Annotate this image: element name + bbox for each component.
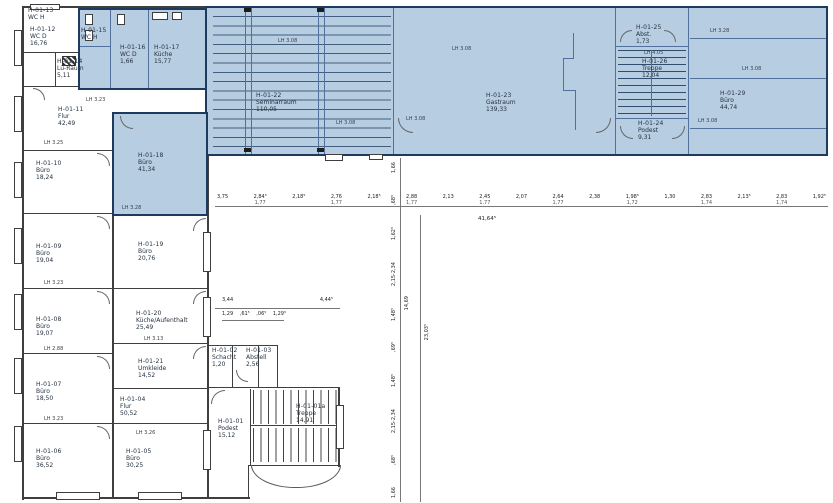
dimension-value: 2,07 bbox=[514, 195, 529, 207]
dimension-value: 1,98⁵1,72 bbox=[624, 195, 641, 207]
room-label-h-01-26: H-01-26Treppe12,04 bbox=[642, 58, 668, 80]
dimension-value: 2,641,77 bbox=[550, 195, 565, 207]
door-arc bbox=[193, 218, 206, 231]
room-label-h-01-14: H-01-14Lü-Raum5,11 bbox=[57, 58, 84, 80]
clear-height-label: LH 3.25 bbox=[44, 140, 63, 146]
dimension-value: 2,831,74 bbox=[774, 195, 789, 207]
dimension-line bbox=[400, 158, 401, 502]
room-label-h-01-24: H-01-24Podest9,31 bbox=[638, 120, 664, 142]
dimension-value: 1,48⁵ bbox=[392, 374, 397, 387]
wall bbox=[393, 8, 394, 154]
room-label-h-01-01a: H-01-01aTreppe14,91 bbox=[296, 403, 325, 425]
room-label-h-01-11: H-01-11Flur42,49 bbox=[58, 106, 84, 128]
column-strip bbox=[245, 8, 252, 154]
dimension-value: 2,15-2,34 bbox=[392, 262, 397, 286]
dimension-value: 2,13⁵ bbox=[736, 195, 753, 207]
room-label-h-01-03: H-01-03Abstell2,56 bbox=[246, 347, 272, 369]
dimension-value: 1,62⁵ bbox=[392, 227, 397, 240]
room-label-h-01-15: H-01-15WC H bbox=[81, 27, 107, 41]
window-symbol bbox=[56, 492, 100, 500]
door-arc bbox=[33, 88, 45, 100]
window-symbol bbox=[203, 232, 211, 272]
dimension-value: 1,48⁵ bbox=[392, 308, 397, 321]
dimension-value: 2,13 bbox=[441, 195, 456, 207]
entrance-stair-treads bbox=[253, 428, 338, 462]
clear-height-label: LH 3.08 bbox=[698, 118, 717, 124]
window-symbol bbox=[14, 358, 22, 394]
vertical-dimension-chain: 1,66,68⁵1,62⁵2,15-2,341,48⁵,69⁵1,48⁵2,15… bbox=[388, 162, 400, 498]
room-label-h-01-22: H-01-22Seminarraum110,05 bbox=[256, 92, 297, 114]
room-label-h-01-17: H-01-17Küche15,77 bbox=[154, 44, 180, 66]
dimension-value: 2,761,77 bbox=[329, 195, 344, 207]
room-label-h-01-21: H-01-21Umkleide14,52 bbox=[138, 358, 166, 380]
wall bbox=[80, 46, 110, 47]
door-arc bbox=[236, 370, 248, 382]
door-arc bbox=[97, 426, 110, 439]
wall bbox=[688, 8, 689, 154]
clear-height-label: LH 3.28 bbox=[122, 205, 141, 211]
room-label-h-01-29: H-01-29Büro44,74 bbox=[720, 90, 746, 112]
wall bbox=[250, 389, 251, 465]
wall-stub bbox=[325, 154, 343, 161]
clear-height-label: LH 3.28 bbox=[710, 28, 729, 34]
dimension-value: 3,44 bbox=[220, 298, 235, 304]
room-label-h-01-08: H-01-08Büro19,07 bbox=[36, 316, 62, 338]
wall bbox=[55, 52, 56, 86]
dimension-value: 1,30 bbox=[662, 195, 677, 207]
dimension-value: ,68⁵ bbox=[392, 195, 397, 205]
column-symbol bbox=[244, 148, 251, 152]
kitchen-fixture bbox=[152, 12, 168, 20]
height-change-line bbox=[690, 78, 826, 79]
dimension-value: ,61⁵ bbox=[238, 312, 252, 318]
wall bbox=[573, 33, 574, 59]
toilet-fixture bbox=[85, 14, 93, 25]
mid-sub-dimension-chain: 1,29,61⁵,06⁵1,29⁵ bbox=[220, 312, 288, 318]
horizontal-dimension-chain: 3,752,84⁵1,772,18⁵2,761,772,18⁵2,881,772… bbox=[215, 195, 828, 207]
door-arc bbox=[97, 356, 110, 369]
window-symbol bbox=[14, 294, 22, 330]
window-symbol bbox=[14, 426, 22, 462]
dimension-total: 14,69 bbox=[404, 296, 410, 310]
clear-height-label: LH 3.23 bbox=[86, 97, 105, 103]
dimension-line bbox=[222, 320, 284, 321]
dimension-value: 2,18⁵ bbox=[365, 195, 382, 207]
clear-height-label: LH 3.08 bbox=[742, 66, 761, 72]
dimension-value: 1,29 bbox=[220, 312, 235, 318]
dimension-value: 1,92⁵ bbox=[811, 195, 828, 207]
door-arc bbox=[97, 153, 110, 166]
room-label-h-01-01: H-01-01Podest15,12 bbox=[218, 418, 244, 440]
clear-height-label: LH 4.05 bbox=[644, 50, 663, 56]
room-label-h-01-23: H-01-23Gastraum139,33 bbox=[486, 92, 516, 114]
height-change-line bbox=[690, 128, 826, 129]
wall-stub bbox=[369, 154, 383, 160]
column-symbol bbox=[244, 8, 251, 12]
wall bbox=[24, 288, 209, 289]
wall bbox=[563, 58, 574, 59]
seminar-row-lines bbox=[213, 16, 391, 148]
room-label-h-01-10: H-01-10Büro18,24 bbox=[36, 160, 62, 182]
window-symbol bbox=[336, 405, 344, 449]
room-label-h-01-12: H-01-12WC D16,76 bbox=[30, 26, 56, 48]
window-symbol bbox=[203, 430, 211, 470]
dimension-value: 2,38 bbox=[587, 195, 602, 207]
wall bbox=[615, 8, 616, 154]
dimension-value: ,69⁵ bbox=[392, 342, 397, 352]
wall bbox=[114, 343, 208, 344]
column-symbol bbox=[317, 148, 324, 152]
wall bbox=[24, 353, 114, 354]
clear-height-label: LH 3.23 bbox=[44, 416, 63, 422]
wall bbox=[575, 90, 576, 130]
wall bbox=[24, 423, 209, 424]
wall bbox=[24, 150, 114, 151]
door-arc bbox=[193, 346, 206, 359]
wall bbox=[209, 387, 340, 388]
dimension-value: ,06⁵ bbox=[254, 312, 268, 318]
window-symbol bbox=[14, 162, 22, 198]
dimension-value: ,68⁵ bbox=[392, 455, 397, 465]
window-symbol bbox=[14, 96, 22, 132]
stair-landing-line bbox=[251, 425, 338, 426]
wall bbox=[148, 10, 149, 88]
wall bbox=[615, 46, 689, 47]
room-label-h-01-13: H-01-13WC H bbox=[28, 7, 54, 21]
wall bbox=[24, 213, 114, 214]
wall bbox=[563, 58, 564, 90]
mid-dimension-chain: 3,444,44⁵ bbox=[220, 298, 335, 304]
clear-height-label: LH 3.08 bbox=[336, 120, 355, 126]
wall bbox=[22, 6, 24, 500]
wall bbox=[114, 388, 208, 389]
dimension-total: 41,64⁵ bbox=[478, 216, 496, 222]
clear-height-label: LH 3.08 bbox=[406, 116, 425, 122]
dimension-total: 23,03⁵ bbox=[424, 324, 430, 340]
room-label-h-01-09: H-01-09Büro19,04 bbox=[36, 243, 62, 265]
clear-height-label: LH 3.26 bbox=[136, 430, 155, 436]
dimension-value: 1,66 bbox=[392, 162, 397, 173]
dimension-value: 2,451,77 bbox=[477, 195, 492, 207]
dimension-value: 1,66 bbox=[392, 487, 397, 498]
room-label-h-01-05: H-01-05Büro30,25 bbox=[126, 448, 152, 470]
window-symbol bbox=[138, 492, 182, 500]
room-label-h-01-16: H-01-16WC D1,66 bbox=[120, 44, 146, 66]
clear-height-label: LH 3.23 bbox=[44, 280, 63, 286]
wall bbox=[248, 465, 249, 498]
dimension-value: 2,881,77 bbox=[404, 195, 419, 207]
entrance-canopy bbox=[251, 465, 341, 488]
room-label-h-01-19: H-01-19Büro20,76 bbox=[138, 241, 164, 263]
kitchen-fixture bbox=[172, 12, 182, 20]
dimension-line bbox=[215, 308, 340, 309]
clear-height-label: LH 3.13 bbox=[144, 336, 163, 342]
column-symbol bbox=[317, 8, 324, 12]
door-arc bbox=[211, 390, 225, 404]
dimension-value: 1,29⁵ bbox=[271, 312, 288, 318]
room-label-h-01-20: H-01-20Küche/Aufenthalt25,49 bbox=[136, 310, 188, 332]
toilet-fixture bbox=[117, 14, 125, 25]
dimension-value: 2,15-2,34 bbox=[392, 409, 397, 433]
dimension-value: 2,84⁵1,77 bbox=[252, 195, 269, 207]
room-label-h-01-02: H-01-02Schacht1,20 bbox=[212, 347, 238, 369]
room-label-h-01-07: H-01-07Büro18,50 bbox=[36, 381, 62, 403]
clear-height-label: LH 3.08 bbox=[452, 46, 471, 52]
column-strip bbox=[318, 8, 325, 154]
wall bbox=[209, 345, 277, 346]
door-arc bbox=[193, 291, 206, 304]
wall bbox=[615, 118, 689, 119]
wall bbox=[110, 10, 111, 88]
room-label-h-01-04: H-01-04Flur50,52 bbox=[120, 396, 146, 418]
room-label-h-01-18: H-01-18Büro41,34 bbox=[138, 152, 164, 174]
wall bbox=[24, 52, 78, 53]
dimension-value: 4,44⁵ bbox=[318, 298, 335, 304]
clear-height-label: LH 3.08 bbox=[278, 38, 297, 44]
floor-plan-canvas: H-01-12WC D16,76 H-01-13WC H H-01-14Lü-R… bbox=[0, 0, 833, 503]
dimension-value: 3,75 bbox=[215, 195, 230, 207]
dimension-value: 2,18⁵ bbox=[290, 195, 307, 207]
dimension-value: 2,831,74 bbox=[699, 195, 714, 207]
height-change-line bbox=[690, 38, 826, 39]
window-symbol bbox=[14, 30, 22, 66]
room-label-h-01-25: H-01-25Abst.1,73 bbox=[636, 24, 662, 46]
door-arc bbox=[97, 216, 110, 229]
window-symbol bbox=[14, 228, 22, 264]
door-arc bbox=[97, 291, 110, 304]
wall bbox=[277, 345, 278, 387]
clear-height-label: LH 2.88 bbox=[44, 346, 63, 352]
room-label-h-01-06: H-01-06Büro36,52 bbox=[36, 448, 62, 470]
dimension-line bbox=[420, 215, 421, 502]
